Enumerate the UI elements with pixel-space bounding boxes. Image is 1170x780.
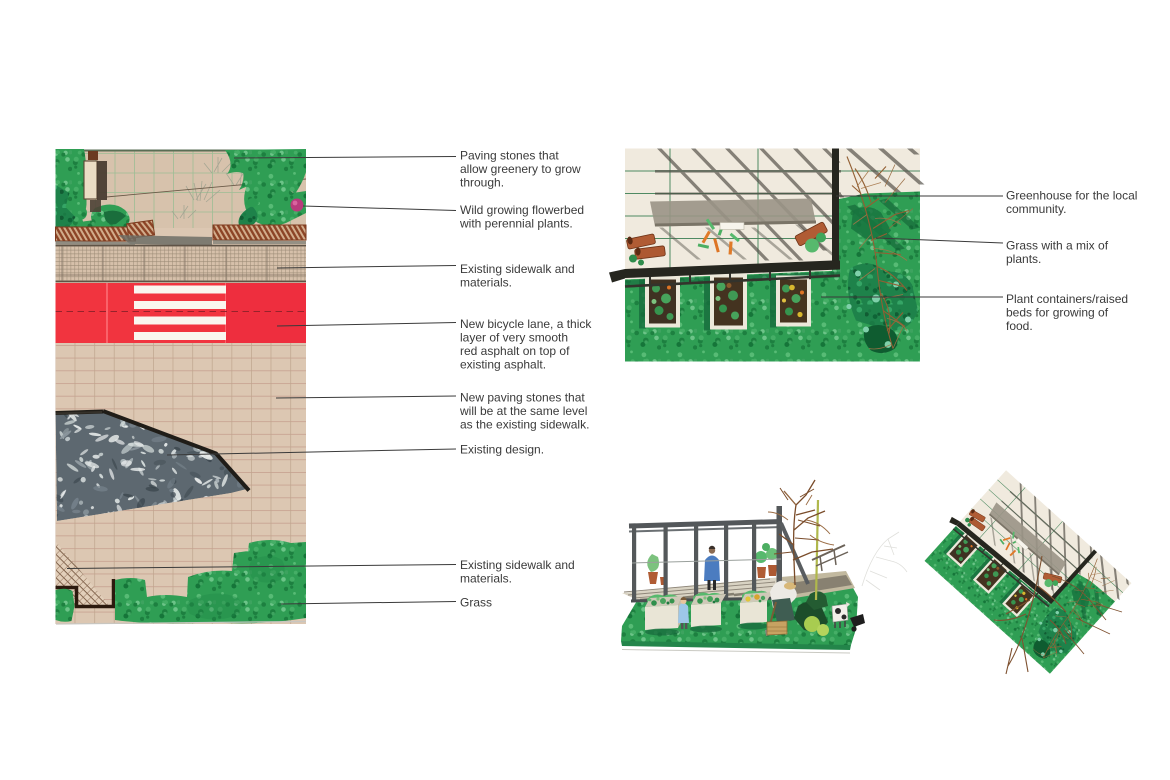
svg-text:New bicycle lane, a thick: New bicycle lane, a thick — [460, 317, 592, 331]
svg-text:red asphalt on top of: red asphalt on top of — [460, 344, 570, 358]
svg-text:Wild growing flowerbed: Wild growing flowerbed — [460, 203, 584, 217]
svg-text:Existing sidewalk and: Existing sidewalk and — [460, 262, 575, 276]
svg-text:materials.: materials. — [460, 276, 512, 290]
svg-text:Grass: Grass — [460, 596, 492, 610]
svg-text:Greenhouse for the local: Greenhouse for the local — [1006, 189, 1137, 203]
svg-text:allow greenery to grow: allow greenery to grow — [460, 162, 581, 176]
svg-text:through.: through. — [460, 176, 504, 190]
svg-text:Plant containers/raised: Plant containers/raised — [1006, 292, 1128, 306]
svg-text:Grass with a mix of: Grass with a mix of — [1006, 239, 1109, 253]
svg-text:Existing sidewalk and: Existing sidewalk and — [460, 558, 575, 572]
svg-text:New paving stones that: New paving stones that — [460, 391, 585, 405]
svg-text:Paving stones that: Paving stones that — [460, 149, 559, 163]
svg-text:existing asphalt.: existing asphalt. — [460, 358, 546, 372]
svg-text:food.: food. — [1006, 319, 1033, 333]
svg-text:as the existing sidewalk.: as the existing sidewalk. — [460, 418, 589, 432]
svg-text:plants.: plants. — [1006, 252, 1041, 266]
svg-text:will be at the same level: will be at the same level — [459, 404, 587, 418]
svg-text:Existing design.: Existing design. — [460, 443, 544, 457]
svg-text:with perennial plants.: with perennial plants. — [459, 217, 573, 231]
svg-text:materials.: materials. — [460, 572, 512, 586]
svg-text:beds for growing of: beds for growing of — [1006, 306, 1109, 320]
svg-text:community.: community. — [1006, 202, 1066, 216]
svg-text:layer of very smooth: layer of very smooth — [460, 331, 568, 345]
